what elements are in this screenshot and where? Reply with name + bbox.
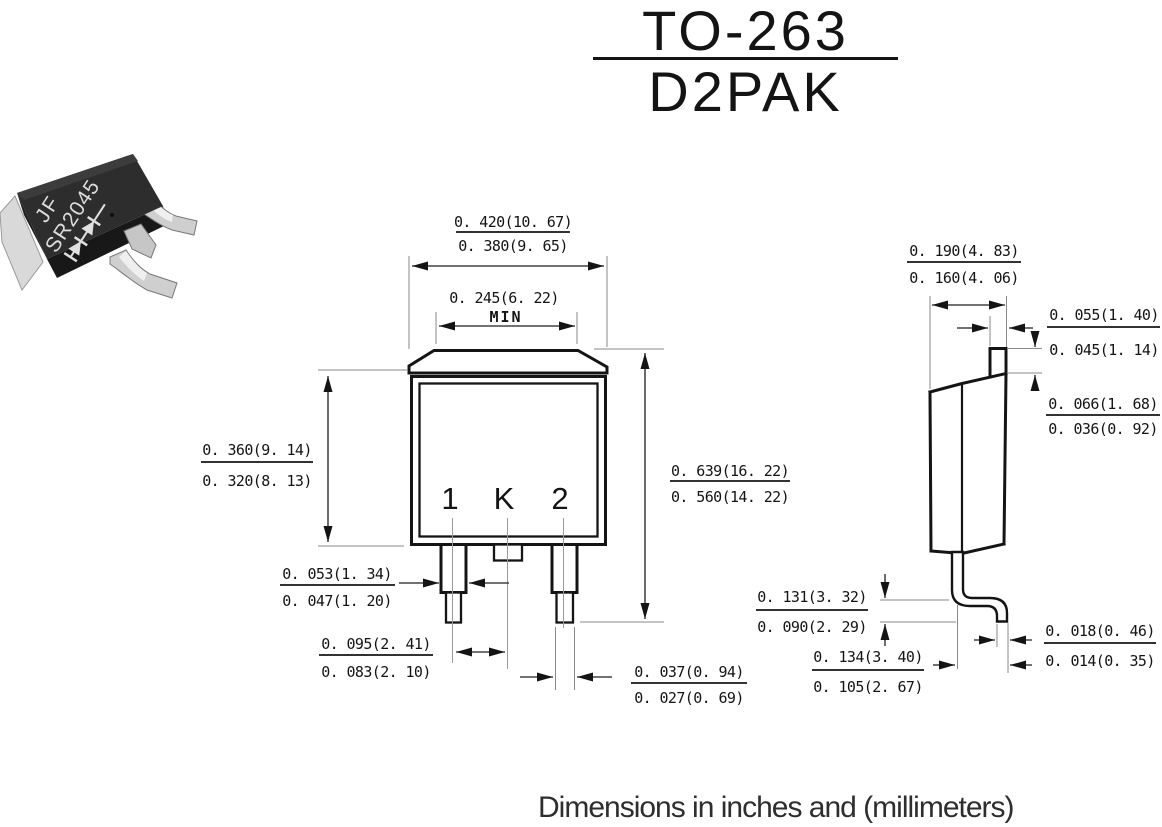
pin-label-k: K	[494, 481, 515, 516]
side-view: 0. 190(4. 83) 0. 160(4. 06) 0. 055(1. 40…	[756, 242, 1160, 696]
front-lead-left	[441, 545, 466, 593]
dim-lead-width-max: 0. 053(1. 34)	[282, 565, 392, 583]
pin-label-1: 1	[441, 481, 458, 516]
side-body-outline	[930, 374, 1006, 554]
dim-lead-standoff: 0. 131(3. 32) 0. 090(2. 29)	[756, 574, 956, 646]
dim-lead-thickness: 0. 018(0. 46) 0. 014(0. 35)	[974, 622, 1156, 673]
dim-tab-step-height-max: 0. 066(1. 68)	[1048, 395, 1158, 413]
mechanical-drawing: JF SR2045 1 K 2	[0, 0, 1162, 827]
dimension-units-note: Dimensions in inches and (millimeters)	[538, 791, 1014, 825]
dim-tab-width: 0. 245(6. 22) MIN	[436, 289, 577, 344]
dim-overall-width-min: 0. 380(9. 65)	[458, 237, 568, 255]
dim-body-thickness-min: 0. 160(4. 06)	[909, 269, 1019, 287]
dim-tab-thickness-min: 0. 045(1. 14)	[1049, 341, 1159, 359]
dim-overall-width-max: 0. 420(10. 67)	[454, 213, 572, 231]
package-photo: JF SR2045	[0, 154, 197, 298]
dim-lead-tip-width-max: 0. 037(0. 94)	[634, 663, 744, 681]
dim-body-thickness: 0. 190(4. 83) 0. 160(4. 06)	[907, 242, 1021, 389]
dim-body-height: 0. 360(9. 14) 0. 320(8. 13)	[201, 370, 407, 546]
front-lead-left-tip	[446, 593, 461, 623]
dim-overall-height-max: 0. 639(16. 22)	[671, 462, 789, 480]
dim-tab-step-height-min: 0. 036(0. 92)	[1048, 420, 1158, 438]
dim-lead-width-min: 0. 047(1. 20)	[282, 592, 392, 610]
dim-lead-pitch-min: 0. 083(2. 10)	[321, 663, 431, 681]
front-body-outline	[412, 377, 606, 545]
front-lead-right-tip	[557, 593, 574, 623]
dim-overall-height: 0. 639(16. 22) 0. 560(14. 22)	[580, 349, 790, 622]
dim-tab-width-qualifier: MIN	[489, 308, 522, 326]
dim-foot-length-max: 0. 134(3. 40)	[813, 648, 923, 666]
side-lead-outline	[952, 552, 1007, 622]
front-lead-right	[552, 545, 577, 593]
dim-tab-thickness-max: 0. 055(1. 40)	[1049, 306, 1159, 324]
dim-lead-standoff-min: 0. 090(2. 29)	[757, 618, 867, 636]
photo-mold-dot	[110, 213, 114, 217]
dim-body-thickness-max: 0. 190(4. 83)	[909, 242, 1019, 260]
dim-body-height-max: 0. 360(9. 14)	[202, 441, 312, 459]
dim-lead-tip-width: 0. 037(0. 94) 0. 027(0. 69)	[520, 627, 747, 707]
dim-lead-tip-width-min: 0. 027(0. 69)	[634, 689, 744, 707]
dim-lead-pitch-max: 0. 095(2. 41)	[321, 635, 431, 653]
dim-overall-height-min: 0. 560(14. 22)	[671, 488, 789, 506]
front-tab-outline	[409, 351, 607, 374]
dim-lead-standoff-max: 0. 131(3. 32)	[757, 588, 867, 606]
dim-lead-width: 0. 053(1. 34) 0. 047(1. 20)	[280, 565, 509, 610]
dim-lead-pitch: 0. 095(2. 41) 0. 083(2. 10)	[319, 635, 505, 681]
dim-lead-thickness-max: 0. 018(0. 46)	[1045, 622, 1155, 640]
pin-label-2: 2	[551, 481, 568, 516]
dim-tab-thickness: 0. 055(1. 40) 0. 045(1. 14)	[957, 306, 1160, 359]
front-view: 1 K 2 0. 420(10. 67) 0. 380(9. 65) 0. 24…	[201, 213, 790, 707]
dim-foot-length-min: 0. 105(2. 67)	[813, 678, 923, 696]
dim-lead-thickness-min: 0. 014(0. 35)	[1045, 652, 1155, 670]
dim-body-height-min: 0. 320(8. 13)	[202, 472, 312, 490]
dim-tab-width-value: 0. 245(6. 22)	[449, 289, 559, 307]
